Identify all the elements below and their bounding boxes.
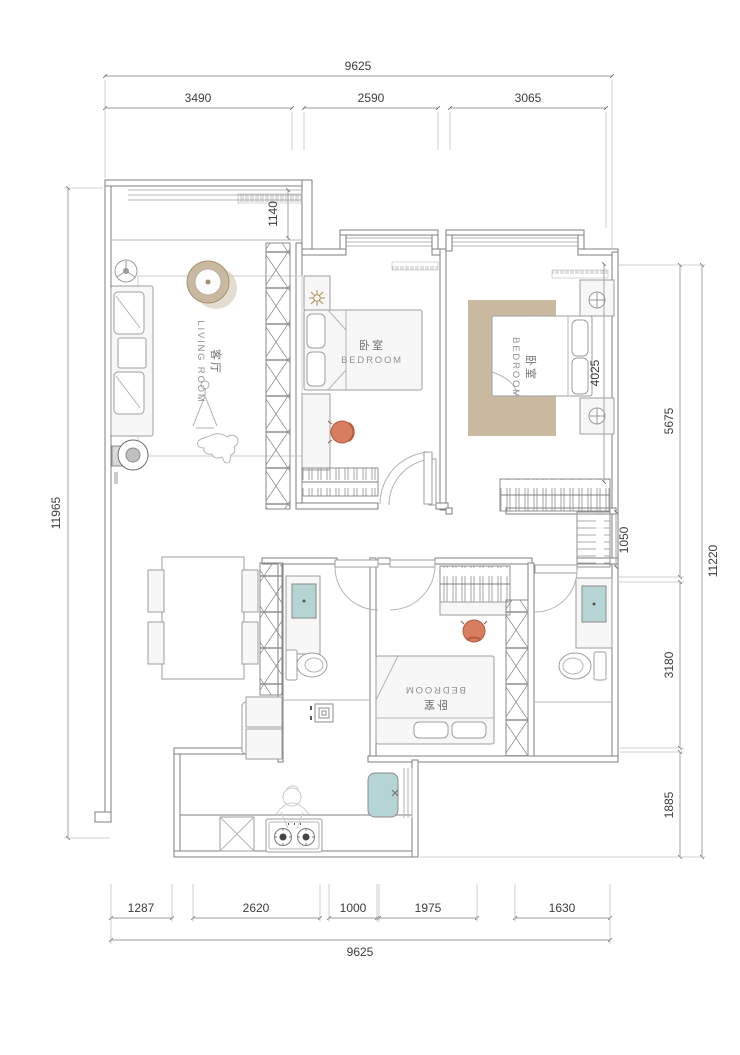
sofa-side-table	[118, 338, 146, 368]
mirror-handle	[303, 600, 306, 603]
wall-bottom-right	[368, 756, 618, 762]
kitchen-window	[404, 768, 412, 818]
desk	[440, 602, 510, 615]
wall-top-balcony	[105, 180, 312, 186]
wall-bay1-outer	[340, 230, 438, 235]
shower-drain-icon	[311, 704, 333, 722]
table-lamp-icon	[589, 292, 605, 308]
wall-bed3-bath2	[528, 563, 534, 762]
cabinet	[246, 697, 282, 727]
kitchen	[180, 768, 412, 852]
wall-living-bed1	[296, 243, 302, 505]
wall-bed2-south-l	[446, 508, 452, 514]
kitchen-sink	[368, 773, 398, 817]
bedroom3-label-en: BEDROOM	[404, 684, 466, 695]
floor-plan-drawing: 客厅 LIVING ROOM 卧室 BEDROOM	[0, 0, 740, 1055]
desk-chair	[328, 421, 354, 443]
sofa	[111, 286, 153, 436]
pillow	[307, 352, 325, 386]
walls	[95, 180, 618, 857]
wall-left	[105, 182, 111, 822]
pillow	[572, 358, 588, 394]
living-room-label-en: LIVING ROOM	[195, 320, 206, 403]
bedroom1-label-zh: 卧室	[359, 338, 385, 352]
wall-balcony-right	[302, 180, 312, 255]
column-hatch	[506, 600, 528, 756]
wall-left-foot	[95, 812, 111, 822]
dim-bottom-4: 1975	[415, 901, 442, 915]
dim-hall-cabinet-depth: 1050	[617, 526, 631, 553]
door-leaf	[390, 560, 435, 567]
door-swing-arc	[390, 565, 435, 610]
cabinet	[246, 729, 282, 759]
pillow	[572, 320, 588, 356]
wall-bed1-south-l	[296, 503, 378, 509]
wall-bed1-bed2	[440, 249, 446, 510]
door-bedroom3	[390, 560, 435, 610]
stove	[266, 819, 322, 852]
wall-bed1-top-l	[302, 249, 346, 255]
column-hatch	[260, 563, 282, 695]
mirror-handle	[593, 603, 596, 606]
living-room-label: 客厅 LIVING ROOM	[195, 320, 223, 403]
dim-balcony-depth: 1140	[266, 201, 280, 227]
dim-right-1: 5675	[662, 407, 676, 434]
door-leaf	[335, 560, 378, 567]
table-lamp-icon	[589, 408, 605, 424]
wall-hall-s2	[378, 558, 390, 564]
dim-bottom-3: 1000	[340, 901, 367, 915]
floor-speaker	[112, 440, 148, 484]
desk	[302, 394, 330, 470]
dim-top-2: 2590	[358, 91, 385, 105]
living-room: 客厅 LIVING ROOM	[111, 243, 302, 509]
dining-chair	[242, 570, 258, 612]
pendant-lamp	[187, 261, 237, 309]
bathroom-bottom-right	[534, 565, 612, 702]
wall-kitchen-left	[174, 748, 180, 857]
dining-chair	[242, 622, 258, 664]
floor-plan-canvas: 客厅 LIVING ROOM 卧室 BEDROOM	[0, 0, 740, 1055]
wall-hall-s3	[435, 558, 532, 564]
bedroom2-label-en: BEDROOM	[510, 337, 521, 399]
tv-feature-wall	[266, 243, 290, 509]
dim-bedroom2-width: 4025	[588, 359, 602, 386]
bay1-window	[346, 238, 432, 246]
desk-chair	[461, 620, 487, 642]
curtain-hatch-bed2	[552, 270, 608, 278]
door-bathroom2	[535, 565, 577, 612]
dining-chair	[148, 570, 164, 612]
bathroom-middle	[246, 560, 378, 759]
dim-bottom-total: 9625	[347, 945, 374, 959]
bed	[492, 316, 592, 396]
dimensions-bottom: 1287 2620 1000 1975 1630 9625	[111, 884, 610, 959]
bedroom-bottom: 卧室 BEDROOM	[376, 560, 528, 756]
dim-bottom-5: 1630	[549, 901, 576, 915]
door-swing-arc	[535, 570, 577, 612]
wall-bath1-bed3	[370, 558, 376, 762]
wall-right	[612, 252, 618, 762]
door-bedroom2	[380, 452, 432, 504]
bedroom2-label-zh: 卧室	[524, 355, 538, 381]
door-leaf	[535, 565, 577, 573]
wall-bay2-outer	[446, 230, 584, 235]
wall-kitchen-right	[412, 760, 418, 857]
hall-side-cabinet	[577, 512, 610, 567]
pillow	[414, 722, 448, 738]
dim-top-total: 9625	[345, 59, 372, 73]
dim-right-2: 3180	[662, 651, 676, 678]
dim-top-3: 3065	[515, 91, 542, 105]
dim-right-total: 11220	[706, 544, 720, 577]
toilet	[559, 652, 606, 680]
dog-figure	[197, 434, 238, 463]
curtain-hatch-bed1	[392, 262, 438, 270]
dim-right-3: 1885	[662, 791, 676, 818]
door-leaf	[424, 452, 432, 504]
bedroom3-label-zh: 卧室	[422, 698, 448, 712]
cabinet-x	[220, 817, 254, 851]
bedroom1-label-en: BEDROOM	[341, 355, 403, 366]
pillow	[452, 722, 486, 738]
bay2-window	[452, 238, 578, 246]
bedroom-top-middle: 卧室 BEDROOM	[302, 262, 438, 505]
dim-top-1: 3490	[185, 91, 212, 105]
living-room-label-zh: 客厅	[209, 349, 223, 375]
dim-left-total: 11965	[49, 496, 63, 529]
pillow	[307, 314, 325, 348]
dimensions-left: 11965	[49, 188, 110, 838]
dimensions-top: 9625 3490 2590 3065	[105, 59, 612, 250]
dining-table	[162, 557, 244, 679]
toilet	[286, 650, 327, 680]
ceiling-fan-icon	[115, 260, 137, 282]
dim-bottom-1: 1287	[128, 901, 155, 915]
bay2-post-l	[446, 235, 452, 251]
dining-chair	[148, 622, 164, 664]
dim-bottom-2: 2620	[243, 901, 270, 915]
ceiling-light-icon	[309, 290, 325, 306]
